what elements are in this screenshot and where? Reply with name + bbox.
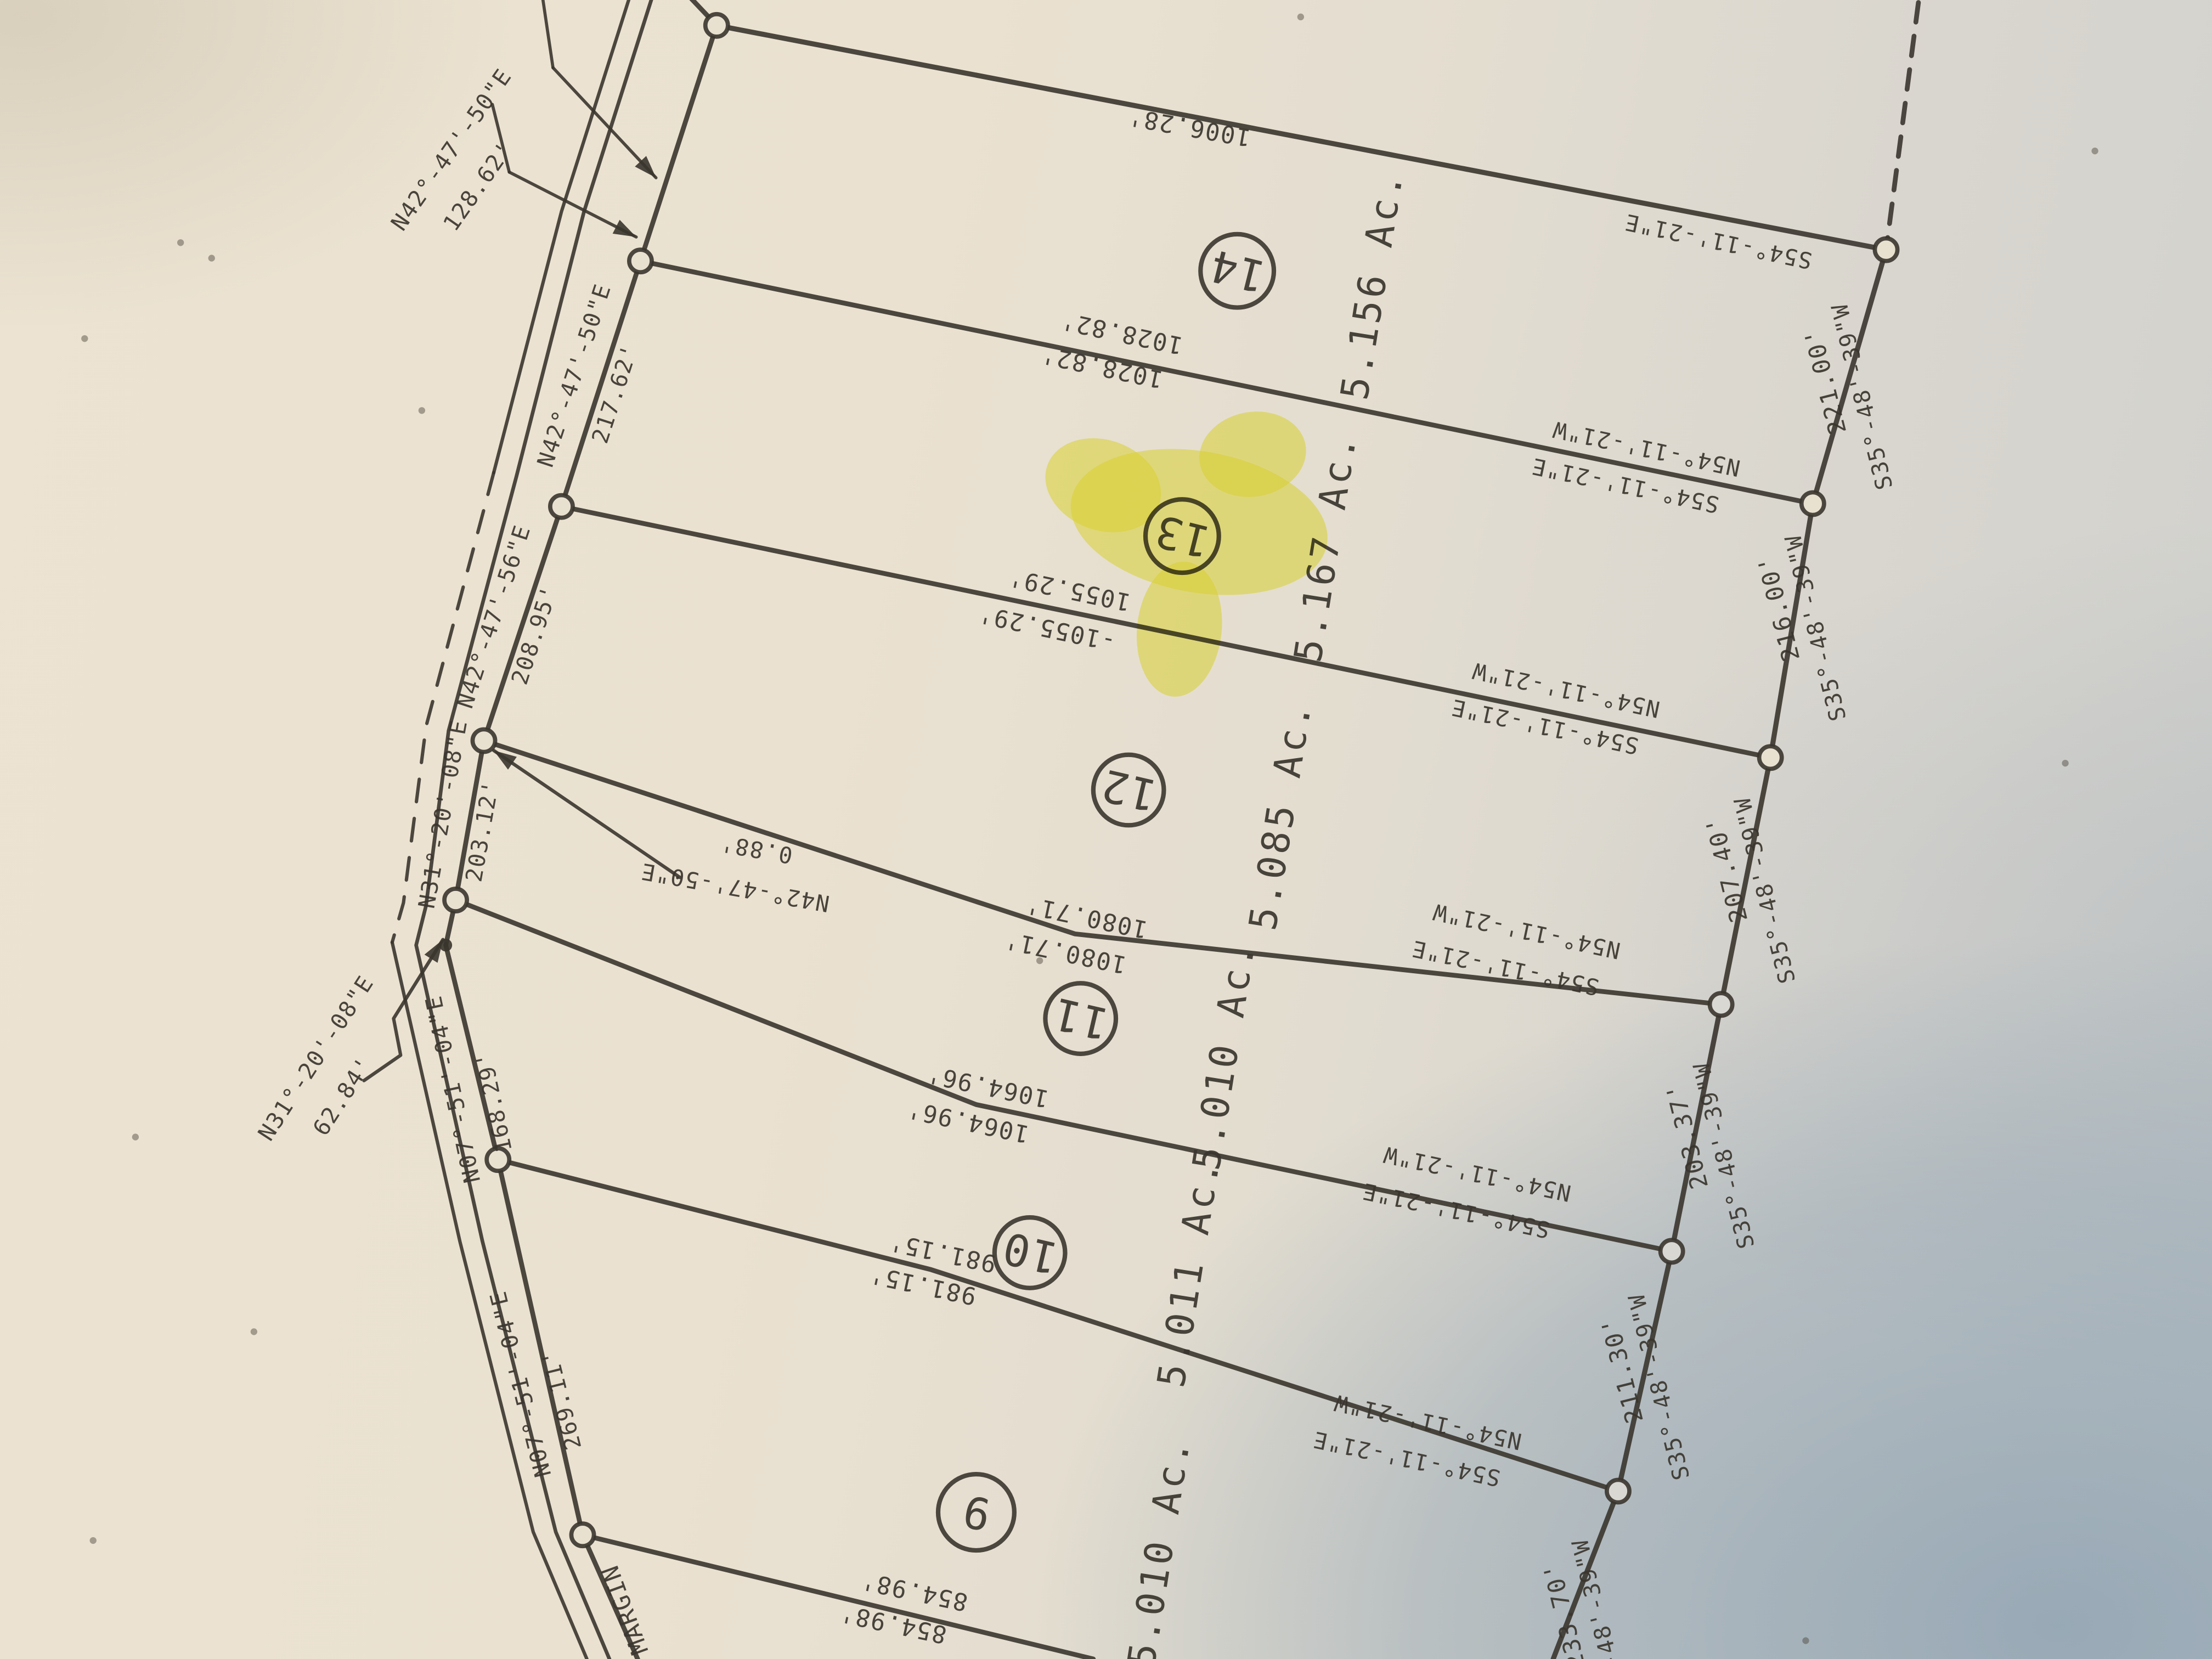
lot-number-label: 10 (997, 1222, 1062, 1284)
map-text-label: 1006.28' (1126, 103, 1253, 152)
lot-12: 125.085 Ac. (1093, 697, 1321, 933)
lot-number-label: 11 (1048, 988, 1113, 1049)
east-boundary-dashed-extension (1886, 0, 1923, 250)
photo-of-plat-map: 145.156 Ac.135.167 Ac.125.085 Ac.115.010… (0, 0, 2212, 1659)
paper-speck (2091, 148, 2098, 154)
west-boundary-seg-1 (640, 25, 716, 261)
paper-speck (81, 335, 88, 342)
corner-monument-circle (472, 729, 495, 752)
corner-monument-circle (571, 1523, 594, 1546)
paper-speck (1297, 14, 1304, 20)
bearing-088-leader-arrow-head (494, 751, 517, 770)
map-text-label: 217.62' (586, 341, 644, 447)
corner-monument-circle (1661, 1240, 1683, 1262)
corner-monument-circle (1875, 239, 1897, 261)
lot-acreage-label: 5.011 Ac. (1149, 1155, 1229, 1391)
corner-monument-circle (1607, 1480, 1629, 1502)
lot-acreage-label: 5.085 Ac. (1241, 697, 1321, 933)
paper-speck (90, 1537, 97, 1544)
map-text-label: 0.88' (718, 830, 794, 869)
lot9-south-line (583, 1535, 1093, 1659)
paper-speck (251, 1328, 257, 1335)
paper-speck (1802, 1637, 1809, 1644)
map-text-label: 208.95' (506, 582, 563, 687)
plat-map-drawing: 145.156 Ac.135.167 Ac.125.085 Ac.115.010… (0, 0, 2212, 1659)
map-text-label: N07°-51'-04"E (420, 993, 486, 1186)
corner-monument-circle (1710, 993, 1733, 1015)
top-bracket-line (541, 0, 553, 67)
map-text-label: N42°-47'-50"E (639, 858, 832, 917)
lot-number-label: 9 (957, 1485, 995, 1540)
corner-point-dot (439, 939, 452, 951)
paper-speck (2062, 760, 2068, 766)
lot-number-label: 12 (1096, 759, 1161, 821)
corner-monument-circle (629, 250, 652, 272)
paper-speck (208, 255, 215, 261)
lot-acreage-label: 5.156 Ac. (1333, 167, 1412, 403)
corner-monument-circle (444, 889, 467, 911)
lot-number-label: 14 (1204, 239, 1271, 302)
top-bracket-leader-arrow (553, 67, 656, 178)
lot-acreage-label: 5.010 Ac. (1120, 1434, 1199, 1659)
lot-10: 105.011 Ac. (995, 1155, 1229, 1391)
map-text-label: 168.29' (470, 1048, 517, 1155)
lot-9: 95.010 Ac. (938, 1434, 1199, 1659)
corner-monument-circle (550, 495, 573, 518)
lot-acreage-label: 5.010 Ac. (1184, 938, 1264, 1173)
lot-14: 145.156 Ac. (1200, 167, 1412, 403)
lot14-north-line (716, 25, 1886, 250)
lot-11: 115.010 Ac. (1045, 938, 1264, 1173)
bearing-088-leader-arrow (494, 751, 680, 877)
corner-monument-circle (1759, 746, 1782, 769)
corner-monument-circle (706, 14, 728, 37)
paper-speck (177, 239, 184, 246)
paper-speck (419, 407, 425, 414)
corner-monument-circle (1802, 492, 1824, 515)
paper-speck (132, 1133, 139, 1140)
bearing-128-leader-arrow-head (613, 220, 636, 237)
